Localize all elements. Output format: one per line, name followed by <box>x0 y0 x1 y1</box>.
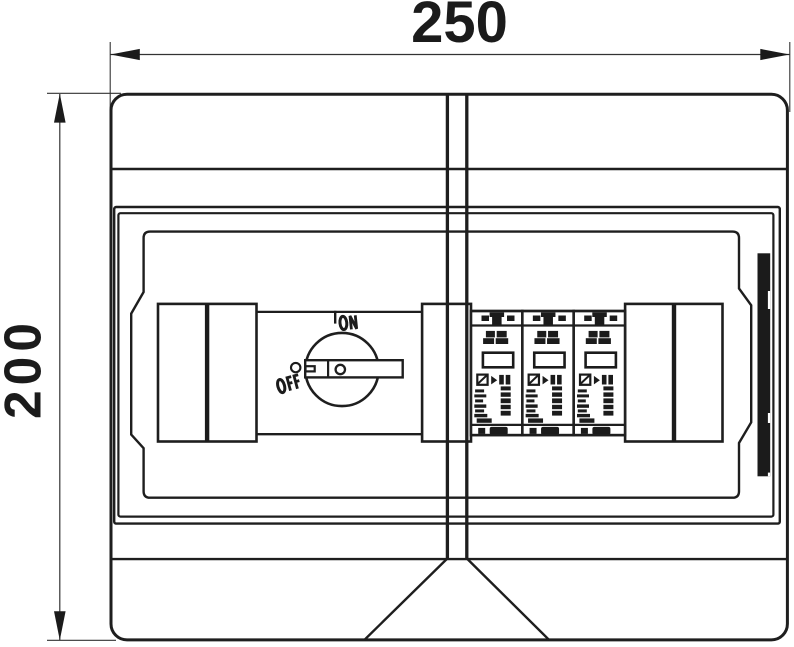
svg-text:200: 200 <box>0 318 51 419</box>
svg-text:250: 250 <box>411 0 508 55</box>
